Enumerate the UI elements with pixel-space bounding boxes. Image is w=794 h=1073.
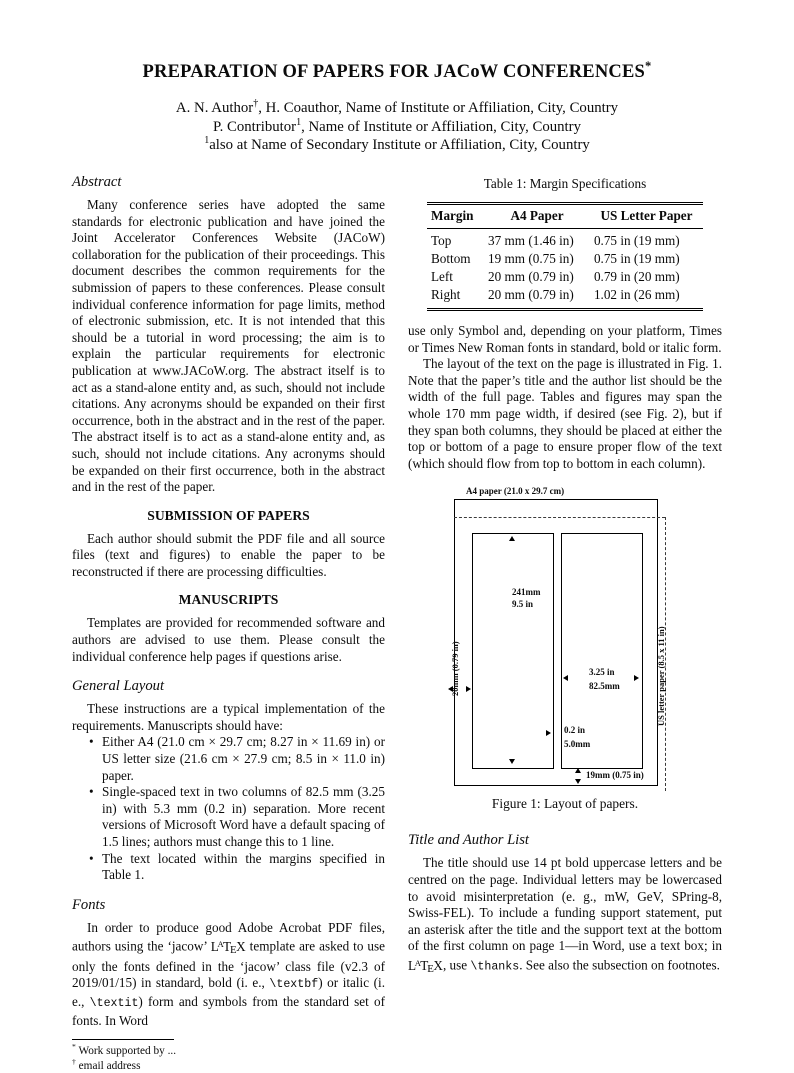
latex-logo: LATEX <box>211 939 246 954</box>
abstract-paragraph: Many conference series have adopted the … <box>72 197 385 496</box>
footnote-line: * Work supported by ... <box>72 1044 385 1059</box>
general-layout-bullet-list: Either A4 (21.0 cm × 29.7 cm; 8.27 in × … <box>72 734 385 883</box>
table-row: Right20 mm (0.79 in)1.02 in (26 mm) <box>427 286 703 310</box>
table-cell: 19 mm (0.75 in) <box>484 250 590 268</box>
table-row: Left20 mm (0.79 in)0.79 in (20 mm) <box>427 268 703 286</box>
table-cell: 1.02 in (26 mm) <box>590 286 703 310</box>
dimension-arrow-right-icon <box>546 730 551 736</box>
general-layout-intro: These instructions are a typical impleme… <box>72 701 385 734</box>
author-line: 1also at Name of Secondary Institute or … <box>0 136 794 155</box>
figure-column-gap-label: 0.2 in 5.0mm <box>564 723 590 751</box>
manuscripts-paragraph: Templates are provided for recommended s… <box>72 615 385 665</box>
figure-caption: Figure 1: Layout of papers. <box>408 796 722 812</box>
title-funding-asterisk: * <box>645 59 652 73</box>
submission-paragraph: Each author should submit the PDF file a… <box>72 531 385 581</box>
dimension-arrow-left-icon <box>448 686 453 692</box>
table-cell: Right <box>427 286 484 310</box>
figure-us-letter-top-edge <box>454 517 665 518</box>
table-cell: Bottom <box>427 250 484 268</box>
table-cell: 20 mm (0.79 in) <box>484 268 590 286</box>
table-cell: 0.75 in (19 mm) <box>590 229 703 251</box>
footnote-block: * Work supported by ...† email address <box>72 1044 385 1073</box>
figure-1: A4 paper (21.0 x 29.7 cm) 241mm 9.5 in 2… <box>408 485 722 823</box>
table-column-header: A4 Paper <box>484 204 590 229</box>
subsection-heading-general-layout: General Layout <box>72 678 385 695</box>
section-heading-submission: SUBMISSION OF PAPERS <box>72 508 385 524</box>
subsection-heading-fonts: Fonts <box>72 897 385 914</box>
latex-logo: LATEX <box>408 958 443 973</box>
dimension-arrow-right-icon <box>466 686 471 692</box>
abstract-heading: Abstract <box>72 174 385 191</box>
figure-us-letter-label: US letter paper (8.5 x 11 in) <box>655 627 667 727</box>
title-author-paragraph: The title should use 14 pt bold uppercas… <box>408 855 722 977</box>
table-column-header: Margin <box>427 204 484 229</box>
figure-bottom-margin-label: 19mm (0.75 in) <box>586 769 644 781</box>
figure-left-column-box <box>472 533 554 769</box>
layout-description-paragraph: The layout of the text on the page is il… <box>408 356 722 472</box>
dimension-arrow-up-icon <box>509 536 515 541</box>
paper-page: PREPARATION OF PAPERS FOR JACoW CONFEREN… <box>0 0 794 1057</box>
subsection-heading-title-author: Title and Author List <box>408 832 722 849</box>
list-item: Either A4 (21.0 cm × 29.7 cm; 8.27 in × … <box>102 734 385 784</box>
figure-column-height-label: 241mm 9.5 in <box>512 586 541 610</box>
left-column: Abstract Many conference series have ado… <box>72 172 385 1073</box>
fonts-continuation-paragraph: use only Symbol and, depending on your p… <box>408 323 722 356</box>
table-row: Bottom19 mm (0.75 in)0.75 in (19 mm) <box>427 250 703 268</box>
table-cell: Top <box>427 229 484 251</box>
dimension-arrow-left-icon <box>563 675 568 681</box>
dimension-arrow-right-icon <box>634 675 639 681</box>
table-cell: 37 mm (1.46 in) <box>484 229 590 251</box>
figure-a4-label: A4 paper (21.0 x 29.7 cm) <box>466 485 564 497</box>
footnote-line: † email address <box>72 1059 385 1073</box>
paper-title: PREPARATION OF PAPERS FOR JACoW CONFEREN… <box>0 62 794 83</box>
table-caption: Table 1: Margin Specifications <box>408 176 722 192</box>
table-cell: 20 mm (0.79 in) <box>484 286 590 310</box>
author-line: P. Contributor1, Name of Institute or Af… <box>0 118 794 137</box>
fonts-paragraph: In order to produce good Adobe Acrobat P… <box>72 920 385 1029</box>
table-row: Top37 mm (1.46 in)0.75 in (19 mm) <box>427 229 703 251</box>
paper-title-text: PREPARATION OF PAPERS FOR JACoW CONFEREN… <box>143 62 645 82</box>
author-line: A. N. Author†, H. Coauthor, Name of Inst… <box>0 99 794 118</box>
dimension-arrow-down-icon <box>509 759 515 764</box>
figure-column-width-label: 3.25 in 82.5mm <box>589 665 620 693</box>
right-column: Table 1: Margin Specifications MarginA4 … <box>408 172 722 977</box>
dimension-arrow-down-icon <box>575 779 581 784</box>
footnote-rule <box>72 1039 174 1040</box>
table-cell: 0.79 in (20 mm) <box>590 268 703 286</box>
table-header: MarginA4 PaperUS Letter Paper <box>427 204 703 229</box>
dimension-arrow-up-icon <box>575 768 581 773</box>
author-list: A. N. Author†, H. Coauthor, Name of Inst… <box>0 99 794 155</box>
margin-specifications-table: MarginA4 PaperUS Letter Paper Top37 mm (… <box>427 202 703 311</box>
table-column-header: US Letter Paper <box>590 204 703 229</box>
list-item: The text located within the margins spec… <box>102 851 385 884</box>
section-heading-manuscripts: MANUSCRIPTS <box>72 592 385 608</box>
table-cell: 0.75 in (19 mm) <box>590 250 703 268</box>
table-cell: Left <box>427 268 484 286</box>
list-item: Single-spaced text in two columns of 82.… <box>102 784 385 850</box>
